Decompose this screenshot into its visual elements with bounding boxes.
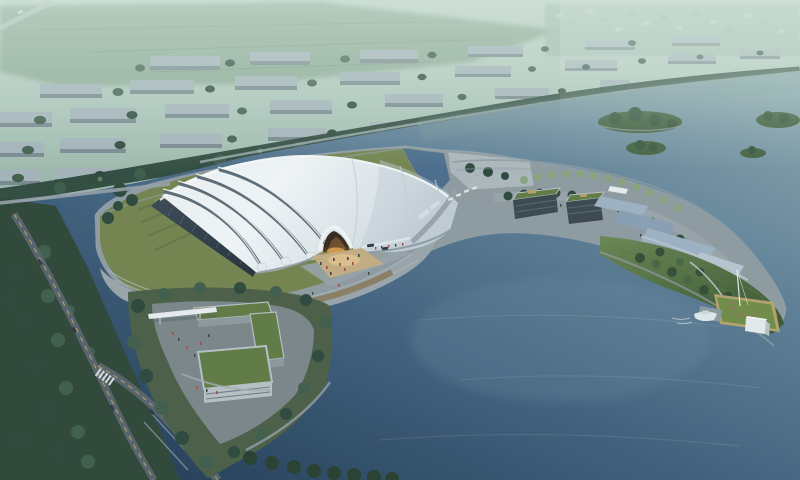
atmosphere (0, 0, 800, 480)
global-tint (0, 0, 800, 480)
aerial-rendering (0, 0, 800, 480)
scene-canvas (0, 0, 800, 480)
